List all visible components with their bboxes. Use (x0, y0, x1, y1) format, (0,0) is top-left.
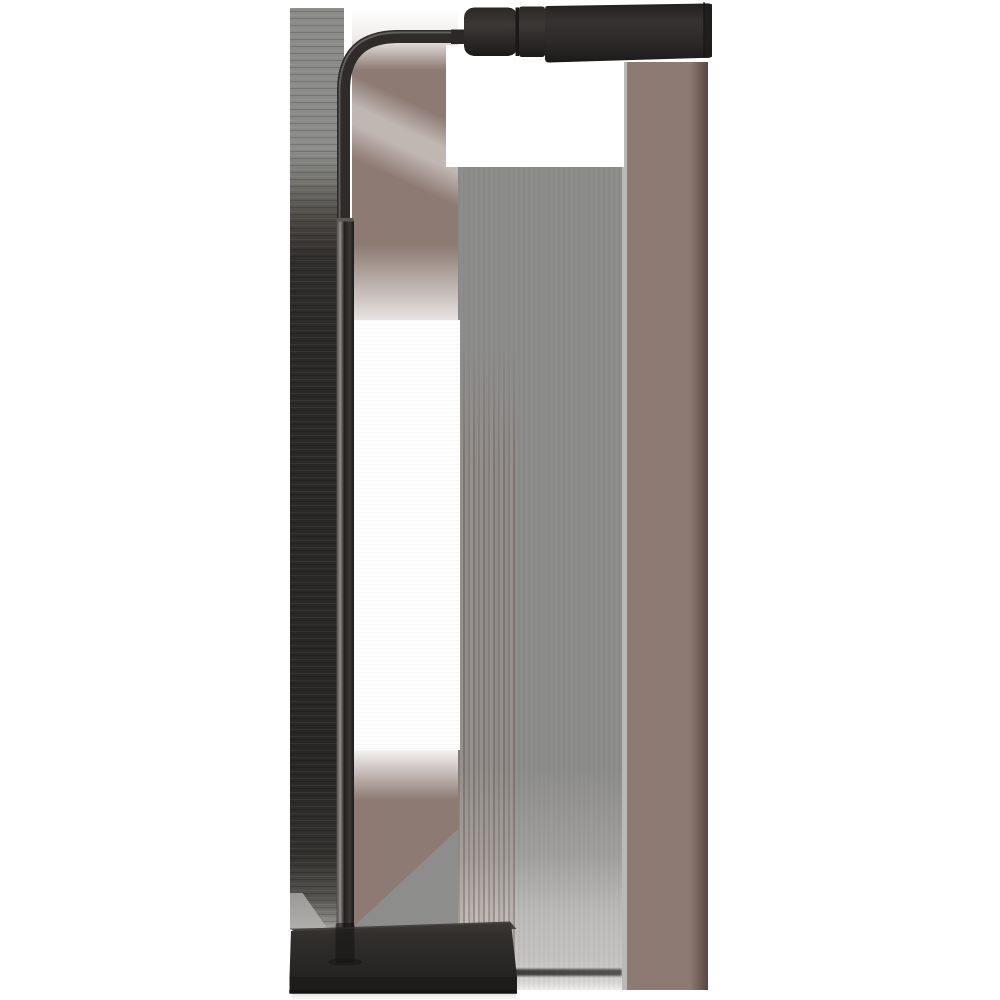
shade-seam (516, 8, 520, 57)
lamp-arm (340, 33, 467, 231)
shade-socket (464, 8, 518, 57)
lamp-base (290, 922, 518, 994)
pole-foot (336, 923, 355, 963)
lamp-pole (337, 218, 355, 960)
shade-mid-section (519, 7, 545, 58)
floor-lamp (0, 0, 1000, 1000)
product-image (0, 0, 1000, 1000)
base-body (290, 923, 518, 977)
pole-collar (337, 218, 355, 222)
shade-cylinder (545, 4, 712, 63)
lamp-shade (451, 2, 712, 63)
